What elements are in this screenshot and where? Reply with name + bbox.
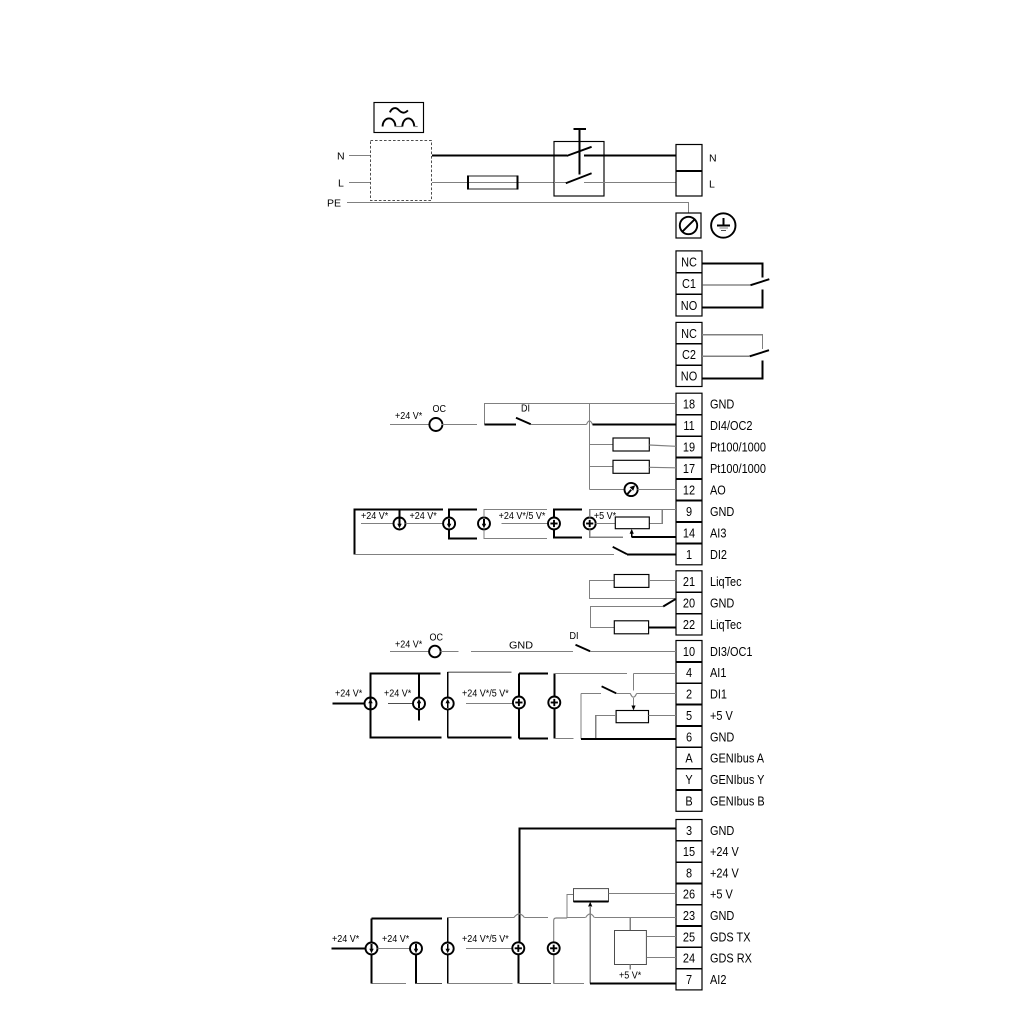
svg-text:8: 8 <box>686 866 692 881</box>
svg-text:PE: PE <box>327 198 341 210</box>
svg-text:20: 20 <box>683 596 695 611</box>
svg-text:GDS TX: GDS TX <box>710 929 751 944</box>
svg-text:B: B <box>685 793 692 808</box>
svg-text:GDS RX: GDS RX <box>710 951 752 966</box>
svg-text:10: 10 <box>683 644 695 659</box>
svg-text:AI3: AI3 <box>710 525 726 540</box>
svg-text:DI2: DI2 <box>710 547 727 562</box>
svg-text:GENIbus B: GENIbus B <box>710 793 765 808</box>
svg-text:NO: NO <box>681 298 697 313</box>
svg-text:GND: GND <box>710 596 734 611</box>
svg-text:NC: NC <box>681 255 697 270</box>
svg-text:11: 11 <box>683 418 694 433</box>
svg-text:GND: GND <box>710 908 734 923</box>
svg-text:+24 V*: +24 V* <box>382 934 409 945</box>
svg-text:26: 26 <box>683 887 695 902</box>
svg-text:1: 1 <box>686 547 692 562</box>
svg-text:AO: AO <box>710 482 726 497</box>
svg-text:GND: GND <box>509 640 533 651</box>
svg-text:+24 V*/5 V*: +24 V*/5 V* <box>462 934 509 945</box>
svg-text:Pt100/1000: Pt100/1000 <box>710 461 766 476</box>
svg-text:23: 23 <box>683 908 695 923</box>
svg-text:N: N <box>337 151 345 163</box>
svg-text:15: 15 <box>683 844 695 859</box>
svg-text:GENIbus Y: GENIbus Y <box>710 772 765 787</box>
svg-text:L: L <box>338 178 344 190</box>
svg-text:Y: Y <box>685 772 693 787</box>
svg-text:+24 V*/5 V*: +24 V*/5 V* <box>462 689 509 700</box>
svg-text:21: 21 <box>683 574 695 589</box>
svg-text:DI4/OC2: DI4/OC2 <box>710 418 753 433</box>
svg-text:19: 19 <box>683 440 695 455</box>
svg-text:DI: DI <box>521 404 530 415</box>
svg-text:+5 V*: +5 V* <box>594 511 616 522</box>
svg-text:LiqTec: LiqTec <box>710 617 742 632</box>
svg-text:DI: DI <box>570 631 579 642</box>
svg-text:OC: OC <box>430 633 444 644</box>
svg-text:Pt100/1000: Pt100/1000 <box>710 440 766 455</box>
svg-text:AI1: AI1 <box>710 665 726 680</box>
svg-text:+24 V*: +24 V* <box>361 511 388 522</box>
svg-text:A: A <box>685 751 693 766</box>
svg-text:2: 2 <box>686 687 692 702</box>
svg-text:17: 17 <box>683 461 695 476</box>
svg-text:LiqTec: LiqTec <box>710 574 742 589</box>
svg-text:GENIbus A: GENIbus A <box>710 751 764 766</box>
svg-text:22: 22 <box>683 617 695 632</box>
svg-text:12: 12 <box>683 482 695 497</box>
svg-text:+5 V*: +5 V* <box>619 971 641 982</box>
svg-text:24: 24 <box>683 951 695 966</box>
svg-text:DI3/OC1: DI3/OC1 <box>710 644 753 659</box>
svg-text:25: 25 <box>683 929 695 944</box>
svg-text:C2: C2 <box>682 347 696 362</box>
svg-text:6: 6 <box>686 729 692 744</box>
svg-text:+24 V*/5 V*: +24 V*/5 V* <box>499 511 546 522</box>
svg-text:+5 V: +5 V <box>710 708 733 723</box>
svg-text:GND: GND <box>710 823 734 838</box>
svg-text:+5 V: +5 V <box>710 887 733 902</box>
svg-text:GND: GND <box>710 504 734 519</box>
svg-text:DI1: DI1 <box>710 687 727 702</box>
svg-text:N: N <box>709 153 717 165</box>
svg-text:+24 V: +24 V <box>710 866 739 881</box>
svg-text:14: 14 <box>683 525 695 540</box>
svg-text:7: 7 <box>686 972 692 987</box>
svg-text:+24 V*: +24 V* <box>332 934 359 945</box>
svg-text:5: 5 <box>686 708 692 723</box>
svg-text:GND: GND <box>710 397 734 412</box>
svg-text:+24 V*: +24 V* <box>410 511 437 522</box>
svg-text:9: 9 <box>686 504 692 519</box>
svg-text:NO: NO <box>681 369 697 384</box>
svg-text:GND: GND <box>710 729 734 744</box>
svg-text:L: L <box>709 179 715 191</box>
svg-text:18: 18 <box>683 397 695 412</box>
svg-text:AI2: AI2 <box>710 972 726 987</box>
svg-text:4: 4 <box>686 665 692 680</box>
svg-text:+24 V: +24 V <box>710 844 739 859</box>
svg-text:C1: C1 <box>682 276 696 291</box>
svg-text:3: 3 <box>686 823 692 838</box>
svg-text:+24 V*: +24 V* <box>384 689 411 700</box>
svg-text:+24 V*: +24 V* <box>395 411 422 422</box>
svg-text:+24 V*: +24 V* <box>335 689 362 700</box>
svg-text:OC: OC <box>433 404 447 415</box>
svg-text:NC: NC <box>681 326 697 341</box>
svg-text:+24 V*: +24 V* <box>395 640 422 651</box>
